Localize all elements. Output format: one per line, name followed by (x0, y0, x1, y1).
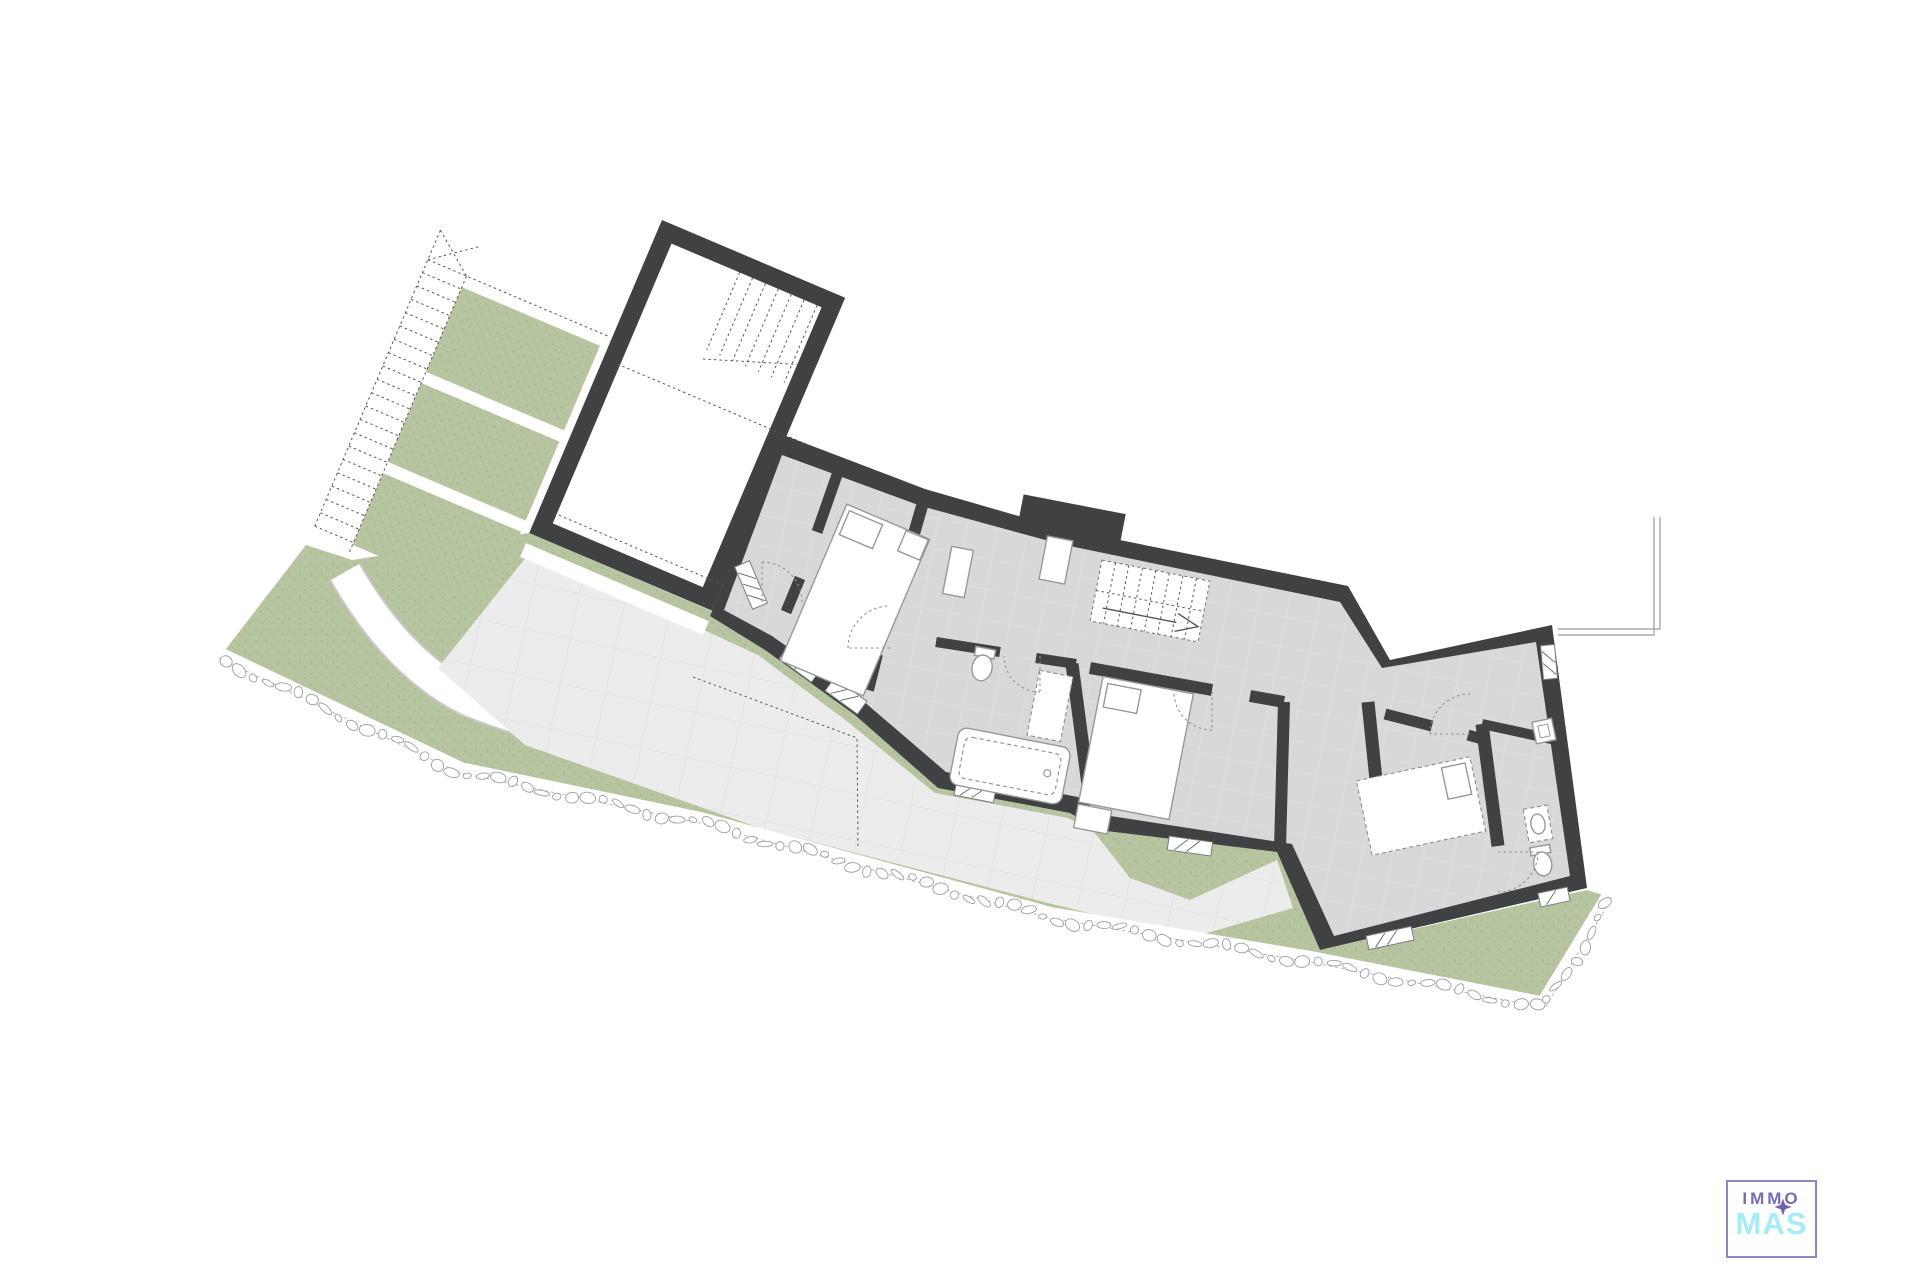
balcony-outline (1558, 517, 1660, 635)
stair-tread (366, 406, 405, 422)
sink-2 (1523, 805, 1553, 843)
stair-tread (320, 513, 359, 529)
floor-plan-page: IMMO MAS (0, 0, 1920, 1280)
stair-tread (400, 326, 439, 342)
stair-tread (343, 459, 382, 475)
stone (1327, 960, 1341, 966)
stair-tread (394, 339, 433, 355)
stair-tread (411, 299, 450, 315)
stone (1007, 899, 1021, 910)
stair-tread (337, 473, 376, 489)
stair-tread (326, 499, 365, 515)
stair-tread (332, 486, 371, 502)
stone (669, 816, 685, 823)
stair-tread (354, 433, 393, 449)
logo-line2: MAS (1728, 1209, 1815, 1239)
duct-box (1532, 718, 1556, 744)
stair-tread (371, 393, 410, 409)
stair-landing-cross (428, 230, 479, 276)
stone (1388, 978, 1403, 986)
stair-tread (315, 526, 354, 542)
stone (1097, 921, 1111, 928)
stair-tread (388, 353, 427, 369)
stair-tread (405, 313, 444, 329)
stair-tread (360, 419, 399, 435)
wall-bedroom2-right (1280, 702, 1284, 848)
stone (294, 686, 303, 698)
immomas-logo: IMMO MAS (1726, 1180, 1817, 1258)
four-point-star-icon (1774, 1198, 1792, 1216)
stone (378, 729, 386, 739)
stair-tread (349, 446, 388, 462)
stair-tread (422, 273, 461, 289)
stone (1039, 914, 1047, 919)
stone (757, 841, 773, 847)
stair-tread (417, 286, 456, 302)
stone (732, 828, 741, 839)
floor-plan-canvas (0, 0, 1920, 1280)
stair-tread (383, 366, 422, 382)
stair-tread (377, 379, 416, 395)
